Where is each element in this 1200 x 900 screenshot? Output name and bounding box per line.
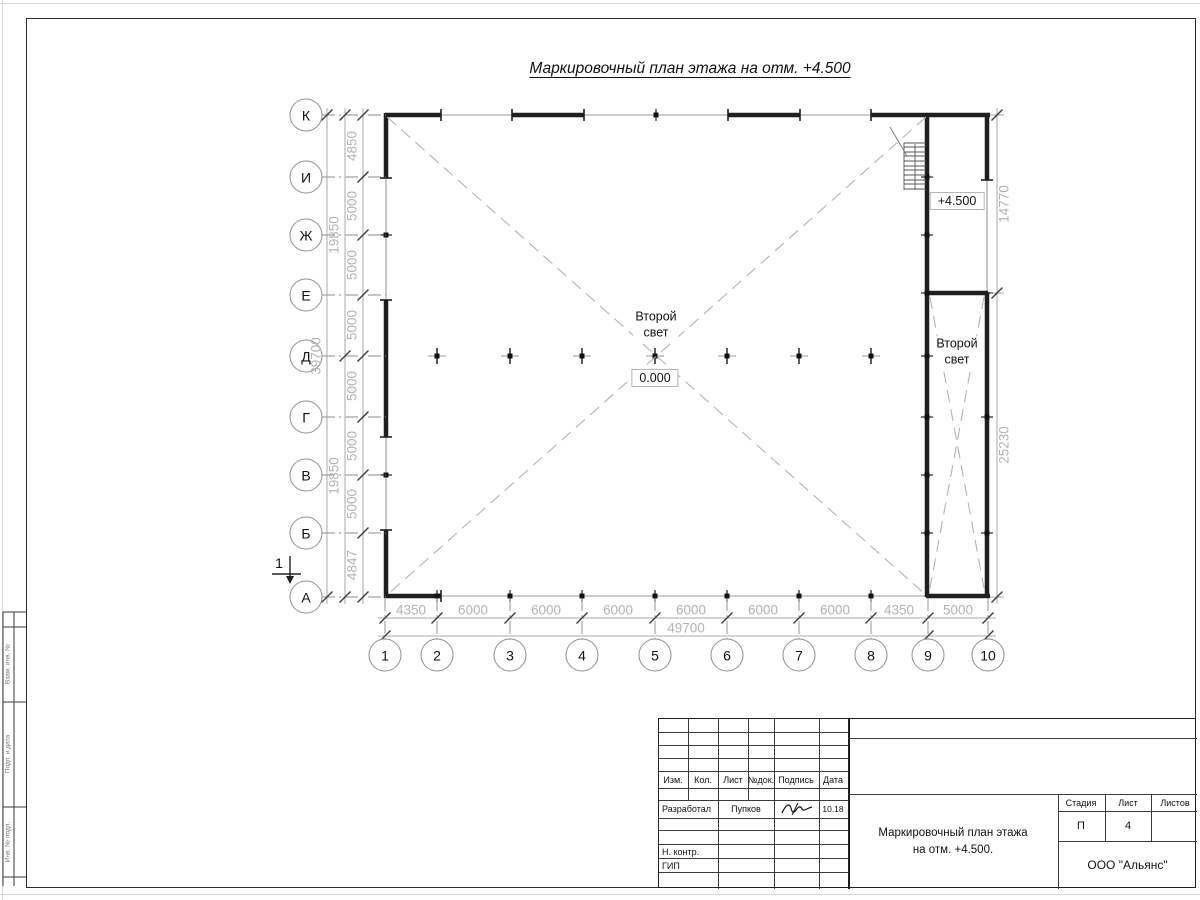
second-light-line2: свет [635,325,676,341]
level-mark-bay: +4.500 [930,192,985,210]
second-light-label-bay: Второй свет [934,336,979,367]
level-mark-zero: 0.000 [631,369,678,387]
ncontrol-label: Н. контр. [662,847,699,857]
dim-label: 39700 [309,337,324,375]
developed-date: 10.18 [822,804,843,814]
company-cell: ООО "Альянс" [1058,841,1197,889]
signature-mark [779,801,815,817]
axis-col-bubble: 10 [972,639,1005,672]
axis-col-bubble: 5 [639,639,672,672]
sheet-header: Лист [1118,798,1138,808]
void-diagonals [387,117,984,595]
axis-row-bubble: К [290,99,323,132]
stamp-line [659,800,848,801]
dim-label: 4850 [345,131,360,161]
axis-col-bubble: 2 [421,639,454,672]
axis-col-bubble: 3 [494,639,527,672]
dim-label: 4350 [396,603,426,618]
margin-label: Подп. и дата [5,735,12,773]
axis-col-bubble: 7 [783,639,816,672]
stamp-col-list: Лист [723,775,743,785]
dim-label: 6000 [531,603,561,618]
wall-column-markers [380,109,993,602]
dim-label: 5000 [943,603,973,618]
second-light-line1: Второй [635,309,676,325]
sheet-number-value: 4 [1125,820,1131,832]
stage-header: Стадия [1066,798,1097,808]
second-light-label-main: Второй свет [633,309,678,340]
interior-column-markers [428,348,880,364]
axis-col-bubble: 9 [912,639,945,672]
stamp-line [659,830,848,831]
axis-row-bubble: В [290,459,323,492]
axis-row-bubble: Ж [290,219,323,252]
dim-label: 6000 [603,603,633,618]
dim-label: 6000 [748,603,778,618]
axis-col-bubble: 8 [855,639,888,672]
dim-label: 19850 [327,457,342,495]
dim-label: 5000 [345,191,360,221]
stamp-line [659,771,848,772]
stamp-line [1058,811,1197,812]
dim-label: 5000 [345,250,360,280]
wall-end-caps [380,109,993,602]
stamp-col-date: Дата [823,775,843,785]
section-mark-number: 1 [275,555,283,571]
axis-col-bubble: 1 [369,639,402,672]
stamp-line [659,818,848,819]
document-title-cell: Маркировочный план этажа на отм. +4.500. [848,794,1058,889]
stamp-line [1105,794,1106,841]
drawing-title: Маркировочный план этажа на отм. +4.500 [440,60,940,78]
dim-label: 25230 [997,426,1012,464]
drawing-sheet: Маркировочный план этажа на отм. +4.500 … [0,0,1200,900]
staircase [890,127,926,190]
axis-col-bubble: 6 [711,639,744,672]
dim-label: 6000 [820,603,850,618]
axis-row-bubble: Г [290,401,323,434]
second-light-line2: свет [936,352,977,368]
stage-value: П [1077,820,1085,832]
title-block: Изм. Кол. Лист №док. Подпись Дата Разраб… [658,718,1196,888]
margin-label: Взам. инв. № [5,644,12,684]
dim-label: 49700 [667,621,705,636]
margin-label: Инв. № подл. [5,822,12,863]
dim-label: 14770 [997,185,1012,223]
stamp-col-signature: Подпись [778,775,814,785]
dim-label: 5000 [345,371,360,401]
stamp-line [659,844,848,845]
axis-col-bubble: 4 [566,639,599,672]
dim-label: 6000 [458,603,488,618]
dim-label: 5000 [345,310,360,340]
axis-row-bubble: Е [290,279,323,312]
sheets-total-header: Листов [1160,798,1189,808]
axis-row-bubble: И [290,161,323,194]
stamp-line [659,732,848,733]
dim-label: 5000 [345,489,360,519]
stamp-line [659,788,848,789]
document-title-line1: Маркировочный план этажа [878,825,1027,841]
dim-label: 4847 [345,550,360,580]
dim-label: 5000 [345,431,360,461]
developed-label: Разработал [662,804,711,814]
dim-label: 6000 [676,603,706,618]
document-title-line2: на отм. +4.500. [878,842,1027,858]
dim-label: 19850 [327,216,342,254]
glazing-lines [385,115,988,597]
second-light-line1: Второй [936,336,977,352]
walls [385,113,990,598]
stamp-col-doc: №док. [748,775,774,785]
stamp-line [659,745,848,746]
stamp-line [659,858,848,859]
gip-label: ГИП [662,861,680,871]
stamp-col-izm: Изм. [663,775,682,785]
stamp-line [659,872,848,873]
stamp-col-kol: Кол. [694,775,712,785]
stamp-line [848,738,1197,739]
dim-label: 4350 [884,603,914,618]
developed-name: Пупков [731,804,761,814]
axis-row-bubble: Б [290,517,323,550]
axis-row-bubble: А [290,581,323,614]
stamp-line [1151,794,1152,841]
stamp-line [659,758,848,759]
